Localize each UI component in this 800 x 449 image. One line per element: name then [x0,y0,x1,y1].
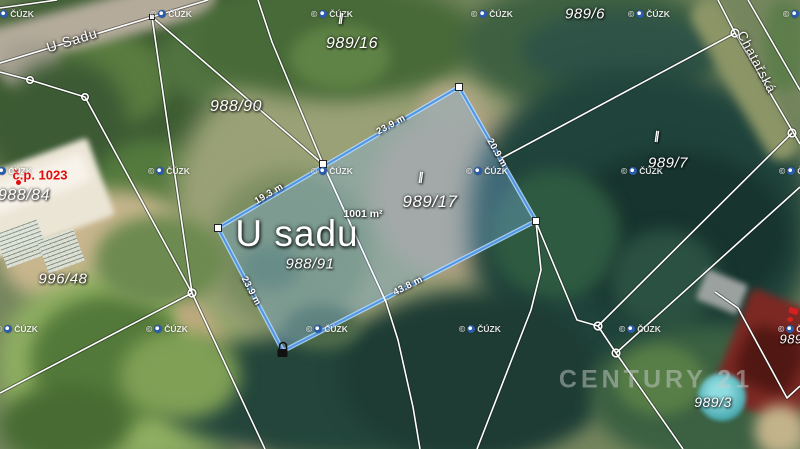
cuzk-watermark: ©ČÚZK [306,324,348,334]
cuzk-watermark: ©ČÚZK [619,324,661,334]
copyright-symbol: © [783,9,789,19]
cuzk-logo-icon [154,325,162,333]
cuzk-logo-icon [4,325,12,333]
cuzk-watermark: ©ČÚZK [150,9,192,19]
cuzk-text: ČÚZK [14,324,38,334]
parcel-number-label: 989/1 [779,332,800,347]
building-number-label: č.p. 1023 [13,168,68,183]
parcel-number-label: 989/3 [694,394,732,410]
parcel-number-label: 989/17 [403,192,458,212]
parcel-number-label: 988/84 [0,187,50,205]
cuzk-watermark: ©ČÚZK [459,324,501,334]
cuzk-logo-icon [479,10,487,18]
cuzk-text: ČÚZK [489,9,513,19]
copyright-symbol: © [311,166,317,176]
cuzk-logo-icon [467,325,475,333]
cuzk-text: ČÚZK [324,324,348,334]
cuzk-logo-icon [319,10,327,18]
parcel-number-label: 989/16 [326,35,378,53]
cuzk-text: ČÚZK [637,324,661,334]
parcel-number-label: 988/90 [210,98,262,116]
cuzk-logo-icon [627,325,635,333]
cuzk-logo-icon [319,167,327,175]
parcel-area-label: 1001 m² [343,208,382,220]
copyright-symbol: © [471,9,477,19]
cuzk-watermark: ©ČÚZK [0,324,38,334]
copyright-symbol: © [628,9,634,19]
parcel-number-label: 989/7 [648,155,688,172]
cuzk-logo-icon [0,167,6,175]
cuzk-logo-icon [0,10,8,18]
cuzk-text: ČÚZK [164,324,188,334]
cuzk-watermark: ©ČÚZK [311,9,353,19]
cuzk-logo-icon [158,10,166,18]
highlight-title-label: U sadu [235,213,358,255]
copyright-symbol: © [306,324,312,334]
cuzk-logo-icon [791,10,799,18]
cuzk-text: ČÚZK [477,324,501,334]
cuzk-logo-icon [314,325,322,333]
cuzk-logo-icon [629,167,637,175]
parcel-number-label: 988/91 [286,256,335,273]
copyright-symbol: © [466,166,472,176]
cuzk-logo-icon [156,167,164,175]
landuse-tick-mark: ∥ [417,170,424,184]
century21-watermark: CENTURY 21 [559,366,753,395]
copyright-symbol: © [311,9,317,19]
cuzk-watermark: ©ČÚZK [311,166,353,176]
cuzk-watermark: ©ČÚZK [148,166,190,176]
cuzk-watermark: ©ČÚZK [628,9,670,19]
copyright-symbol: © [459,324,465,334]
cuzk-text: ČÚZK [166,166,190,176]
copyright-symbol: © [146,324,152,334]
copyright-symbol: © [779,166,785,176]
building-point-marker [16,180,21,185]
copyright-symbol: © [621,166,627,176]
cuzk-text: ČÚZK [484,166,508,176]
cuzk-text: ČÚZK [329,166,353,176]
copyright-symbol: © [619,324,625,334]
parcel-number-label: 996/48 [39,271,88,288]
copyright-symbol: © [148,166,154,176]
cuzk-logo-icon [787,167,795,175]
partial-red-dot-mark [787,317,793,322]
cuzk-logo-icon [636,10,644,18]
cuzk-text: ČÚZK [10,9,34,19]
cuzk-watermark: ©ČÚZK [783,9,800,19]
copyright-symbol: © [0,324,2,334]
copyright-symbol: © [150,9,156,19]
parcel-number-label: 989/6 [565,6,605,23]
cuzk-watermark: ©ČÚZK [0,9,34,19]
cuzk-watermark: ©ČÚZK [471,9,513,19]
cuzk-watermark: ©ČÚZK [779,166,800,176]
cadastral-aerial-map: U sadu 1001 m² č.p. 1023 CENTURY 21 989/… [0,0,800,449]
cuzk-logo-icon [474,167,482,175]
cuzk-text: ČÚZK [646,9,670,19]
landuse-tick-mark: ∥ [653,129,660,143]
landuse-tick-mark: ∥ [337,11,344,25]
cuzk-watermark: ©ČÚZK [146,324,188,334]
cuzk-text: ČÚZK [168,9,192,19]
